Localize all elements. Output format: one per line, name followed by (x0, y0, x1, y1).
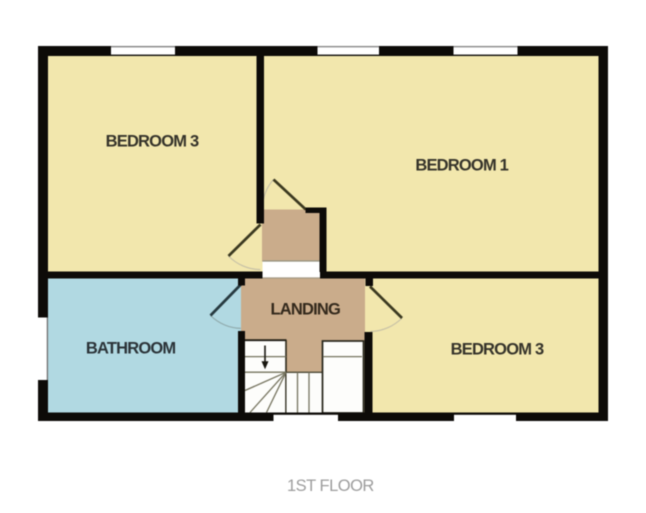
svg-text:BEDROOM 3: BEDROOM 3 (106, 132, 199, 150)
svg-text:BEDROOM 3: BEDROOM 3 (451, 341, 544, 359)
svg-text:LANDING: LANDING (271, 301, 341, 319)
svg-text:1ST FLOOR: 1ST FLOOR (287, 477, 374, 495)
svg-text:BEDROOM 1: BEDROOM 1 (415, 156, 508, 174)
svg-text:BATHROOM: BATHROOM (86, 340, 176, 358)
